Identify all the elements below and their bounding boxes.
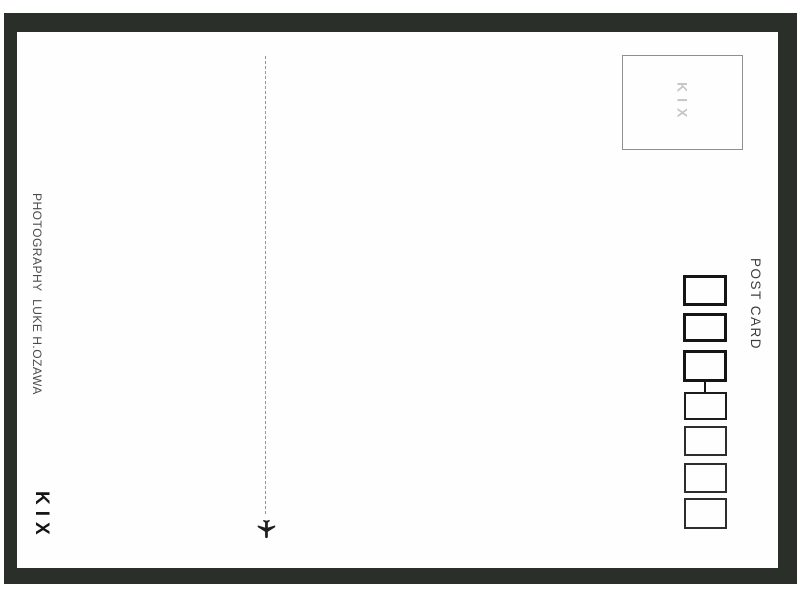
stamp-box: KIX (622, 55, 743, 150)
brand-logo: KIX (30, 491, 52, 541)
postal-code-box-6 (684, 463, 727, 493)
photographer-credit: PHOTOGRAPHY LUKE H.OZAWA (30, 193, 44, 395)
postal-code-box-1 (683, 275, 727, 306)
postal-code-box-7 (684, 498, 727, 529)
postal-code-box-2 (683, 313, 727, 342)
postcard-back: PHOTOGRAPHY LUKE H.OZAWA KIX KIX POST CA… (17, 32, 778, 568)
stamp-label: KIX (675, 82, 691, 123)
center-divider-line (265, 56, 266, 514)
postcard-title: POST CARD (748, 258, 763, 350)
postal-code-box-4 (684, 392, 727, 420)
postal-code-box-3 (683, 350, 727, 382)
postal-code-box-5 (684, 426, 727, 456)
stamp-box-inner: KIX (623, 56, 742, 149)
airplane-icon (255, 518, 277, 540)
